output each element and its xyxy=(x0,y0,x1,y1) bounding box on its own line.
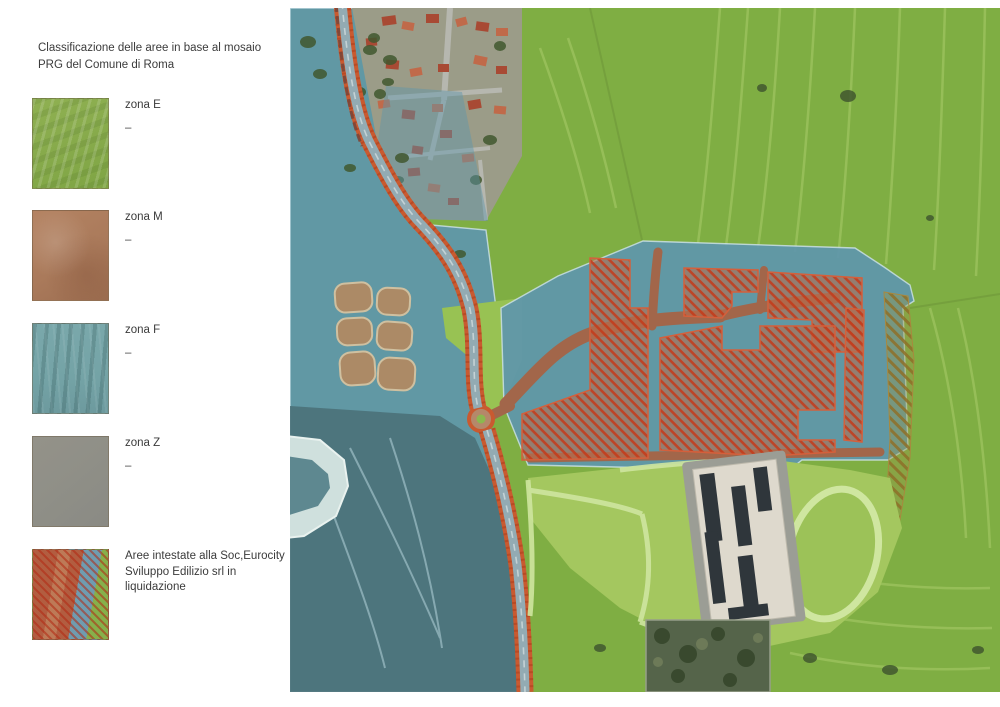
building-complex xyxy=(682,450,806,633)
legend-item-zona-f: zona F – xyxy=(32,323,282,415)
zona-f-note: – xyxy=(125,347,297,359)
zona-z-swatch xyxy=(32,436,109,527)
zona-z-note: – xyxy=(125,460,297,472)
legend-panel: Classificazione delle aree in base al mo… xyxy=(0,0,290,707)
legend-item-zona-e: zona E – xyxy=(32,98,282,190)
zona-f-swatch xyxy=(32,323,109,414)
zona-m-label: zona M xyxy=(125,210,297,226)
figure-page: Classificazione delle aree in base al mo… xyxy=(0,0,1000,707)
legend-title: Classificazione delle aree in base al mo… xyxy=(38,40,278,75)
zona-f-label: zona F xyxy=(125,323,297,339)
zona-m-note: – xyxy=(125,234,297,246)
aerial-map-image xyxy=(290,8,1000,692)
zona-e-note: – xyxy=(125,122,297,134)
aree-eurocity-swatch xyxy=(32,549,109,640)
zona-m-swatch xyxy=(32,210,109,301)
eurocity-area-east-column xyxy=(844,308,864,442)
legend-item-aree-eurocity: Aree intestate alla Soc,Eurocity Svilupp… xyxy=(32,549,282,641)
map-figure xyxy=(290,8,1000,692)
zona-z-label: zona Z xyxy=(125,436,297,452)
wooded-parcel xyxy=(646,620,770,692)
legend-item-zona-m: zona M – xyxy=(32,210,282,302)
zona-e-swatch xyxy=(32,98,109,189)
roundabout xyxy=(469,407,493,431)
legend-item-zona-z: zona Z – xyxy=(32,436,282,528)
zona-e-label: zona E xyxy=(125,98,297,114)
aree-eurocity-label: Aree intestate alla Soc,Eurocity Svilupp… xyxy=(125,549,297,596)
